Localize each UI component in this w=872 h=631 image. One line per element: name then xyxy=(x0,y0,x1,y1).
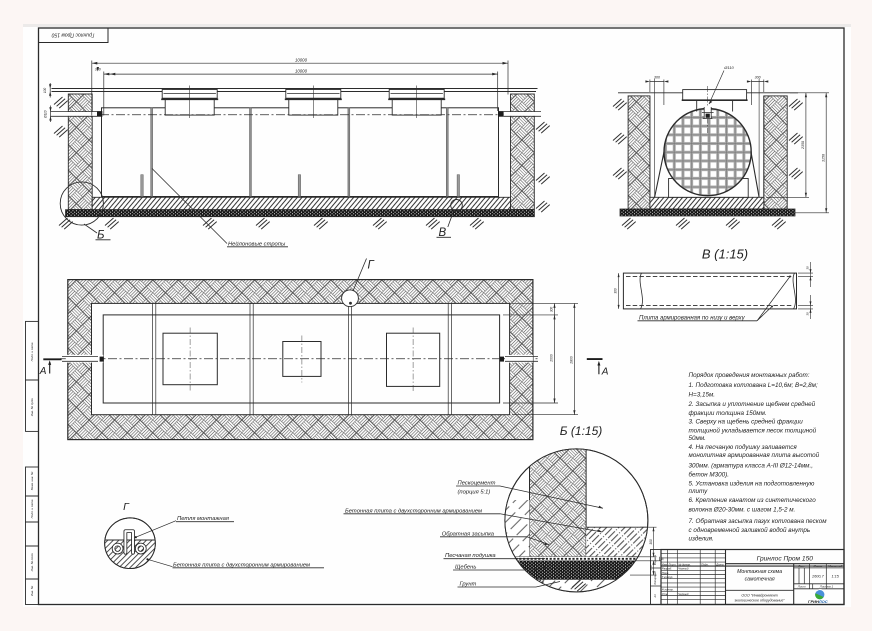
svg-text:10000: 10000 xyxy=(295,58,308,63)
svg-text:Лист: Лист xyxy=(797,585,806,589)
svg-text:300: 300 xyxy=(614,288,618,294)
svg-text:Утв.: Утв. xyxy=(662,592,669,596)
svg-text:1. Подготовка котлована L=10,6: 1. Подготовка котлована L=10,6м; В=2,8м; xyxy=(689,381,818,389)
svg-text:(порция 5:1): (порция 5:1) xyxy=(458,490,491,496)
svg-text:плиту: плиту xyxy=(689,488,709,495)
svg-text:4. На песчаную подушку заливае: 4. На песчаную подушку заливается xyxy=(689,443,798,451)
svg-text:Лит.: Лит. xyxy=(797,564,805,568)
svg-text:Масштаб: Масштаб xyxy=(828,564,842,568)
svg-text:Подп. и дата: Подп. и дата xyxy=(30,342,34,361)
svg-text:Гринлос Пром 150: Гринлос Пром 150 xyxy=(51,31,94,37)
svg-text:Нейлоновые стропы: Нейлоновые стропы xyxy=(228,240,286,247)
svg-text:ООО "Инвайронмент: ООО "Инвайронмент xyxy=(741,594,777,598)
svg-text:50мм.: 50мм. xyxy=(689,435,706,442)
svg-text:100: 100 xyxy=(43,88,47,94)
svg-text:2600,7: 2600,7 xyxy=(811,575,825,579)
svg-text:Подп.: Подп. xyxy=(701,562,709,566)
svg-text:Взам. инв. №: Взам. инв. № xyxy=(30,471,34,490)
svg-text:Инв. №: Инв. № xyxy=(30,585,34,596)
svg-text:2000: 2000 xyxy=(550,354,554,363)
svg-text:фракции толщина 150мм.: фракции толщина 150мм. xyxy=(689,410,767,417)
svg-text:Формат: Формат xyxy=(653,554,657,565)
svg-text:5. Установка изделия на подгот: 5. Установка изделия на подготовленную xyxy=(689,480,815,488)
svg-text:ГРИНЛОС: ГРИНЛОС xyxy=(808,599,828,604)
svg-text:А3: А3 xyxy=(653,594,657,599)
svg-text:Петля монтажная: Петля монтажная xyxy=(177,516,229,522)
svg-text:7. Обратная засыпка пазух котл: 7. Обратная засыпка пазух котлована песк… xyxy=(689,517,828,525)
svg-text:30: 30 xyxy=(806,312,810,316)
svg-text:монолитная армированная плита: монолитная армированная плита высотой xyxy=(689,451,820,459)
svg-text:толщиной укладывается песок то: толщиной укладывается песок толщиной xyxy=(689,426,817,434)
svg-text:1:15: 1:15 xyxy=(832,575,840,579)
svg-text:300: 300 xyxy=(654,75,660,79)
svg-text:Подп. и дата: Подп. и дата xyxy=(30,499,34,518)
svg-text:Листов 1: Листов 1 xyxy=(819,585,834,589)
svg-text:Ø110: Ø110 xyxy=(43,110,47,119)
svg-text:2. Засыпка и уплотнение щебнем: 2. Засыпка и уплотнение щебнем средней xyxy=(688,400,816,408)
svg-text:Б (1:15): Б (1:15) xyxy=(560,424,603,438)
svg-text:А: А xyxy=(601,367,609,378)
svg-text:Черный: Черный xyxy=(678,592,689,596)
svg-text:Н=3,15м.: Н=3,15м. xyxy=(689,392,716,399)
svg-text:Дата: Дата xyxy=(715,562,724,566)
svg-text:30: 30 xyxy=(806,266,810,270)
svg-text:Масса: Масса xyxy=(813,564,822,568)
svg-text:Инв. № дубл.: Инв. № дубл. xyxy=(30,398,34,417)
svg-text:самотечная: самотечная xyxy=(745,577,775,583)
svg-text:Т.контр.: Т.контр. xyxy=(662,575,674,579)
svg-text:2350: 2350 xyxy=(801,141,805,150)
svg-text:А: А xyxy=(39,366,47,377)
svg-text:экологическое оборудование": экологическое оборудование" xyxy=(734,599,785,603)
svg-text:Монтажная схема: Монтажная схема xyxy=(737,569,782,575)
svg-text:3. Сверху на щебень средней фр: 3. Сверху на щебень средней фракции xyxy=(689,418,804,426)
svg-text:3150: 3150 xyxy=(821,154,825,162)
svg-text:6. Крепление канатом из синтет: 6. Крепление канатом из синтетического xyxy=(689,497,817,504)
svg-text:Ø110: Ø110 xyxy=(723,65,734,70)
svg-text:300: 300 xyxy=(649,539,653,545)
svg-text:изделия.: изделия. xyxy=(689,535,714,543)
svg-text:2800: 2800 xyxy=(570,356,574,365)
svg-text:Копировал: Копировал xyxy=(653,571,657,584)
svg-text:волокна Ø20-30мм. с шагом 1,5-: волокна Ø20-30мм. с шагом 1,5-2 м. xyxy=(689,507,796,514)
svg-text:300: 300 xyxy=(755,75,761,79)
svg-text:бетон М300).: бетон М300). xyxy=(689,471,729,479)
svg-text:Гринлос Пром 150: Гринлос Пром 150 xyxy=(757,556,814,563)
svg-text:300: 300 xyxy=(550,307,554,313)
svg-text:Черный: Черный xyxy=(678,567,689,571)
svg-text:с одновременной заливкой водой: с одновременной заливкой водой внутрь xyxy=(689,526,811,534)
svg-text:В (1:15): В (1:15) xyxy=(702,247,748,262)
svg-text:Инв. № подл.: Инв. № подл. xyxy=(30,553,34,572)
svg-text:10000: 10000 xyxy=(295,69,308,74)
svg-text:300: 300 xyxy=(95,67,101,71)
svg-text:Г: Г xyxy=(368,260,375,272)
svg-text:300мм. (арматура класса А-III: 300мм. (арматура класса А-III Ø12-14мм., xyxy=(689,462,814,469)
svg-text:Порядок проведения монтажных р: Порядок проведения монтажных работ: xyxy=(689,371,810,379)
